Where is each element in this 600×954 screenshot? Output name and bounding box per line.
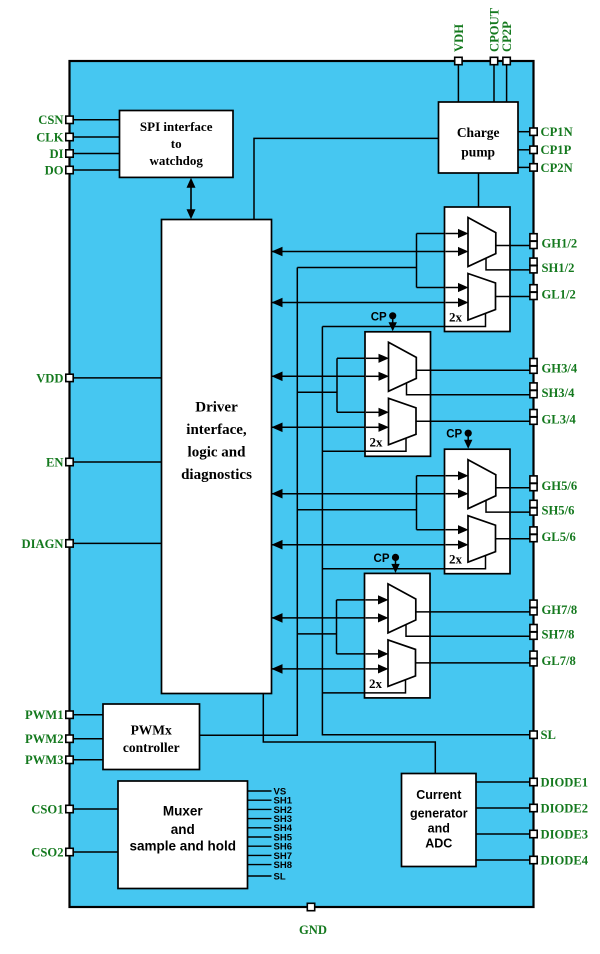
svg-text:VDD: VDD	[36, 371, 63, 385]
svg-text:SPI interface: SPI interface	[140, 119, 213, 134]
svg-text:CP2N: CP2N	[541, 161, 573, 175]
svg-text:ADC: ADC	[425, 837, 452, 851]
svg-text:and: and	[171, 822, 195, 837]
svg-text:generator: generator	[410, 807, 468, 821]
svg-text:GH5/6: GH5/6	[542, 479, 578, 493]
svg-text:CP1P: CP1P	[541, 143, 572, 157]
svg-text:CSN: CSN	[38, 113, 63, 127]
svg-text:CP1N: CP1N	[541, 125, 573, 139]
svg-text:SH5/6: SH5/6	[542, 503, 575, 517]
svg-text:GL1/2: GL1/2	[542, 288, 576, 302]
svg-text:CP: CP	[371, 311, 387, 323]
svg-text:PWMx: PWMx	[131, 723, 172, 738]
svg-text:GH3/4: GH3/4	[542, 362, 578, 376]
svg-text:controller: controller	[123, 740, 180, 755]
svg-text:Muxer: Muxer	[163, 804, 204, 819]
svg-text:GH1/2: GH1/2	[542, 237, 578, 251]
svg-text:CSO1: CSO1	[31, 802, 63, 816]
svg-text:CP: CP	[446, 429, 462, 441]
svg-text:GH7/8: GH7/8	[542, 603, 578, 617]
svg-text:2x: 2x	[369, 676, 383, 691]
svg-text:DIODE3: DIODE3	[541, 827, 589, 841]
svg-text:VDH: VDH	[452, 24, 466, 52]
svg-text:pump: pump	[461, 145, 495, 160]
svg-text:SH8: SH8	[274, 860, 292, 871]
svg-text:SL: SL	[541, 728, 556, 742]
svg-text:diagnostics: diagnostics	[181, 467, 252, 483]
svg-text:Charge: Charge	[457, 125, 500, 140]
svg-text:SH7/8: SH7/8	[542, 628, 575, 642]
svg-text:SH3/4: SH3/4	[542, 386, 576, 400]
svg-text:PWM2: PWM2	[25, 732, 63, 746]
svg-text:and: and	[428, 822, 450, 836]
svg-text:CSO2: CSO2	[31, 845, 63, 859]
svg-text:interface,: interface,	[186, 422, 247, 438]
svg-text:DIODE2: DIODE2	[541, 801, 589, 815]
svg-text:Current: Current	[416, 788, 462, 802]
svg-text:GL5/6: GL5/6	[542, 530, 576, 544]
svg-text:DIAGN: DIAGN	[22, 537, 64, 551]
svg-text:SL: SL	[274, 871, 286, 882]
svg-text:2x: 2x	[449, 310, 463, 325]
svg-text:logic and: logic and	[188, 445, 247, 461]
svg-text:SH1/2: SH1/2	[542, 261, 575, 275]
svg-text:EN: EN	[46, 455, 64, 469]
svg-text:DIODE4: DIODE4	[541, 853, 589, 867]
svg-text:PWM3: PWM3	[25, 753, 63, 767]
svg-text:GL7/8: GL7/8	[542, 654, 576, 668]
svg-text:DO: DO	[45, 163, 64, 177]
svg-text:CP2P: CP2P	[500, 21, 514, 52]
svg-text:CLK: CLK	[36, 130, 63, 144]
svg-text:GL3/4: GL3/4	[542, 413, 577, 427]
svg-text:to: to	[171, 136, 182, 151]
svg-text:2x: 2x	[449, 552, 463, 567]
svg-text:DI: DI	[50, 147, 64, 161]
svg-text:GND: GND	[299, 923, 327, 937]
svg-text:PWM1: PWM1	[25, 708, 63, 722]
svg-text:2x: 2x	[370, 434, 384, 449]
svg-text:Driver: Driver	[195, 400, 238, 416]
svg-text:watchdog: watchdog	[149, 153, 203, 168]
svg-text:DIODE1: DIODE1	[541, 775, 589, 789]
svg-text:sample and hold: sample and hold	[130, 839, 237, 854]
svg-text:CP: CP	[374, 553, 390, 565]
